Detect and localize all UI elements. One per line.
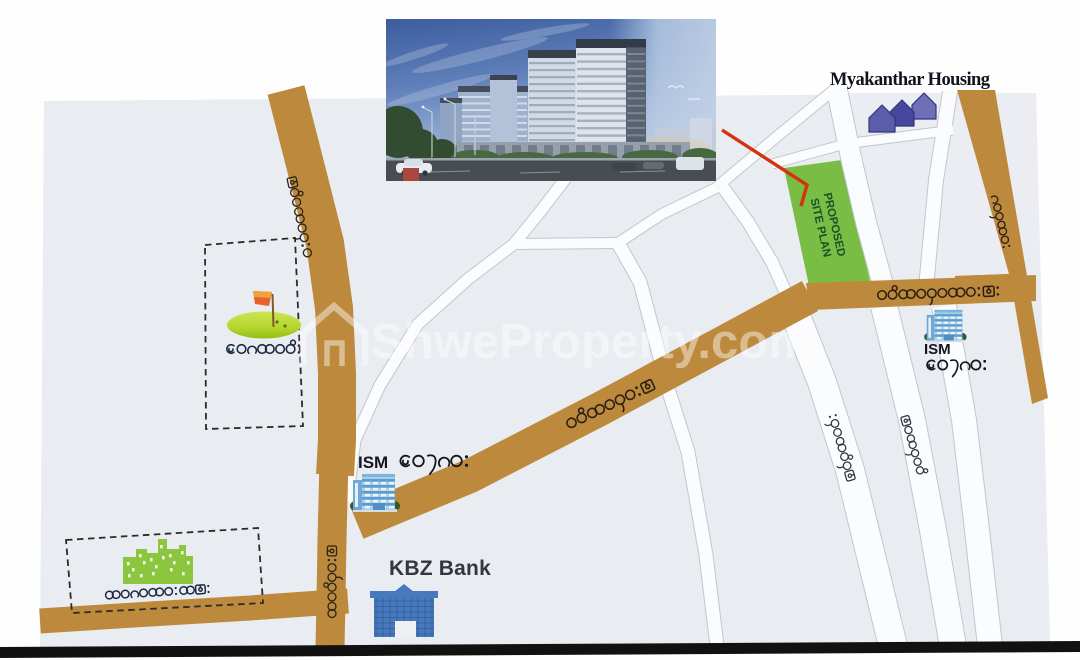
svg-text:ISM: ISM bbox=[358, 453, 388, 472]
svg-text:KBZ Bank: KBZ Bank bbox=[389, 557, 491, 580]
svg-text:ShweProperty.com: ShweProperty.com bbox=[371, 315, 812, 369]
svg-text:ISM: ISM bbox=[924, 341, 951, 358]
svg-text:Myakanthar Housing: Myakanthar Housing bbox=[830, 70, 991, 90]
